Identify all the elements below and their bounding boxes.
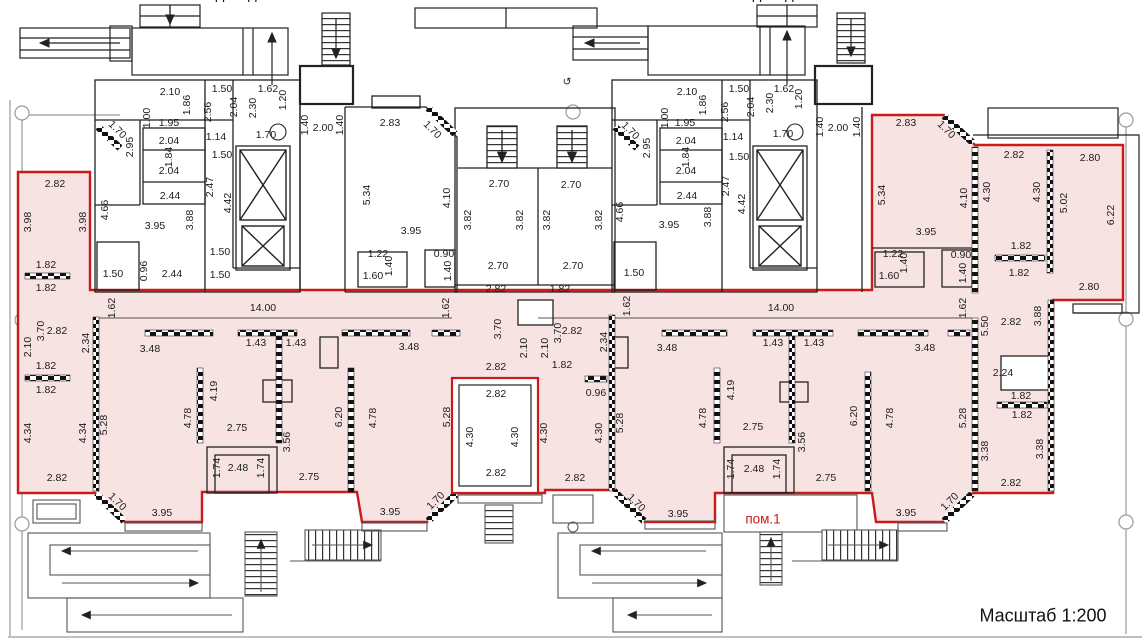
floor-plan-drawing: [0, 0, 1147, 640]
central-duct-room: [452, 378, 538, 493]
premise-outline: [18, 115, 1123, 522]
floor-plan-canvas: Подъезд 2 Подъезд 1 пом.1 Масштаб 1:200 …: [0, 0, 1147, 640]
door-marks: [270, 124, 803, 140]
entrance-left-structures: [20, 5, 597, 104]
